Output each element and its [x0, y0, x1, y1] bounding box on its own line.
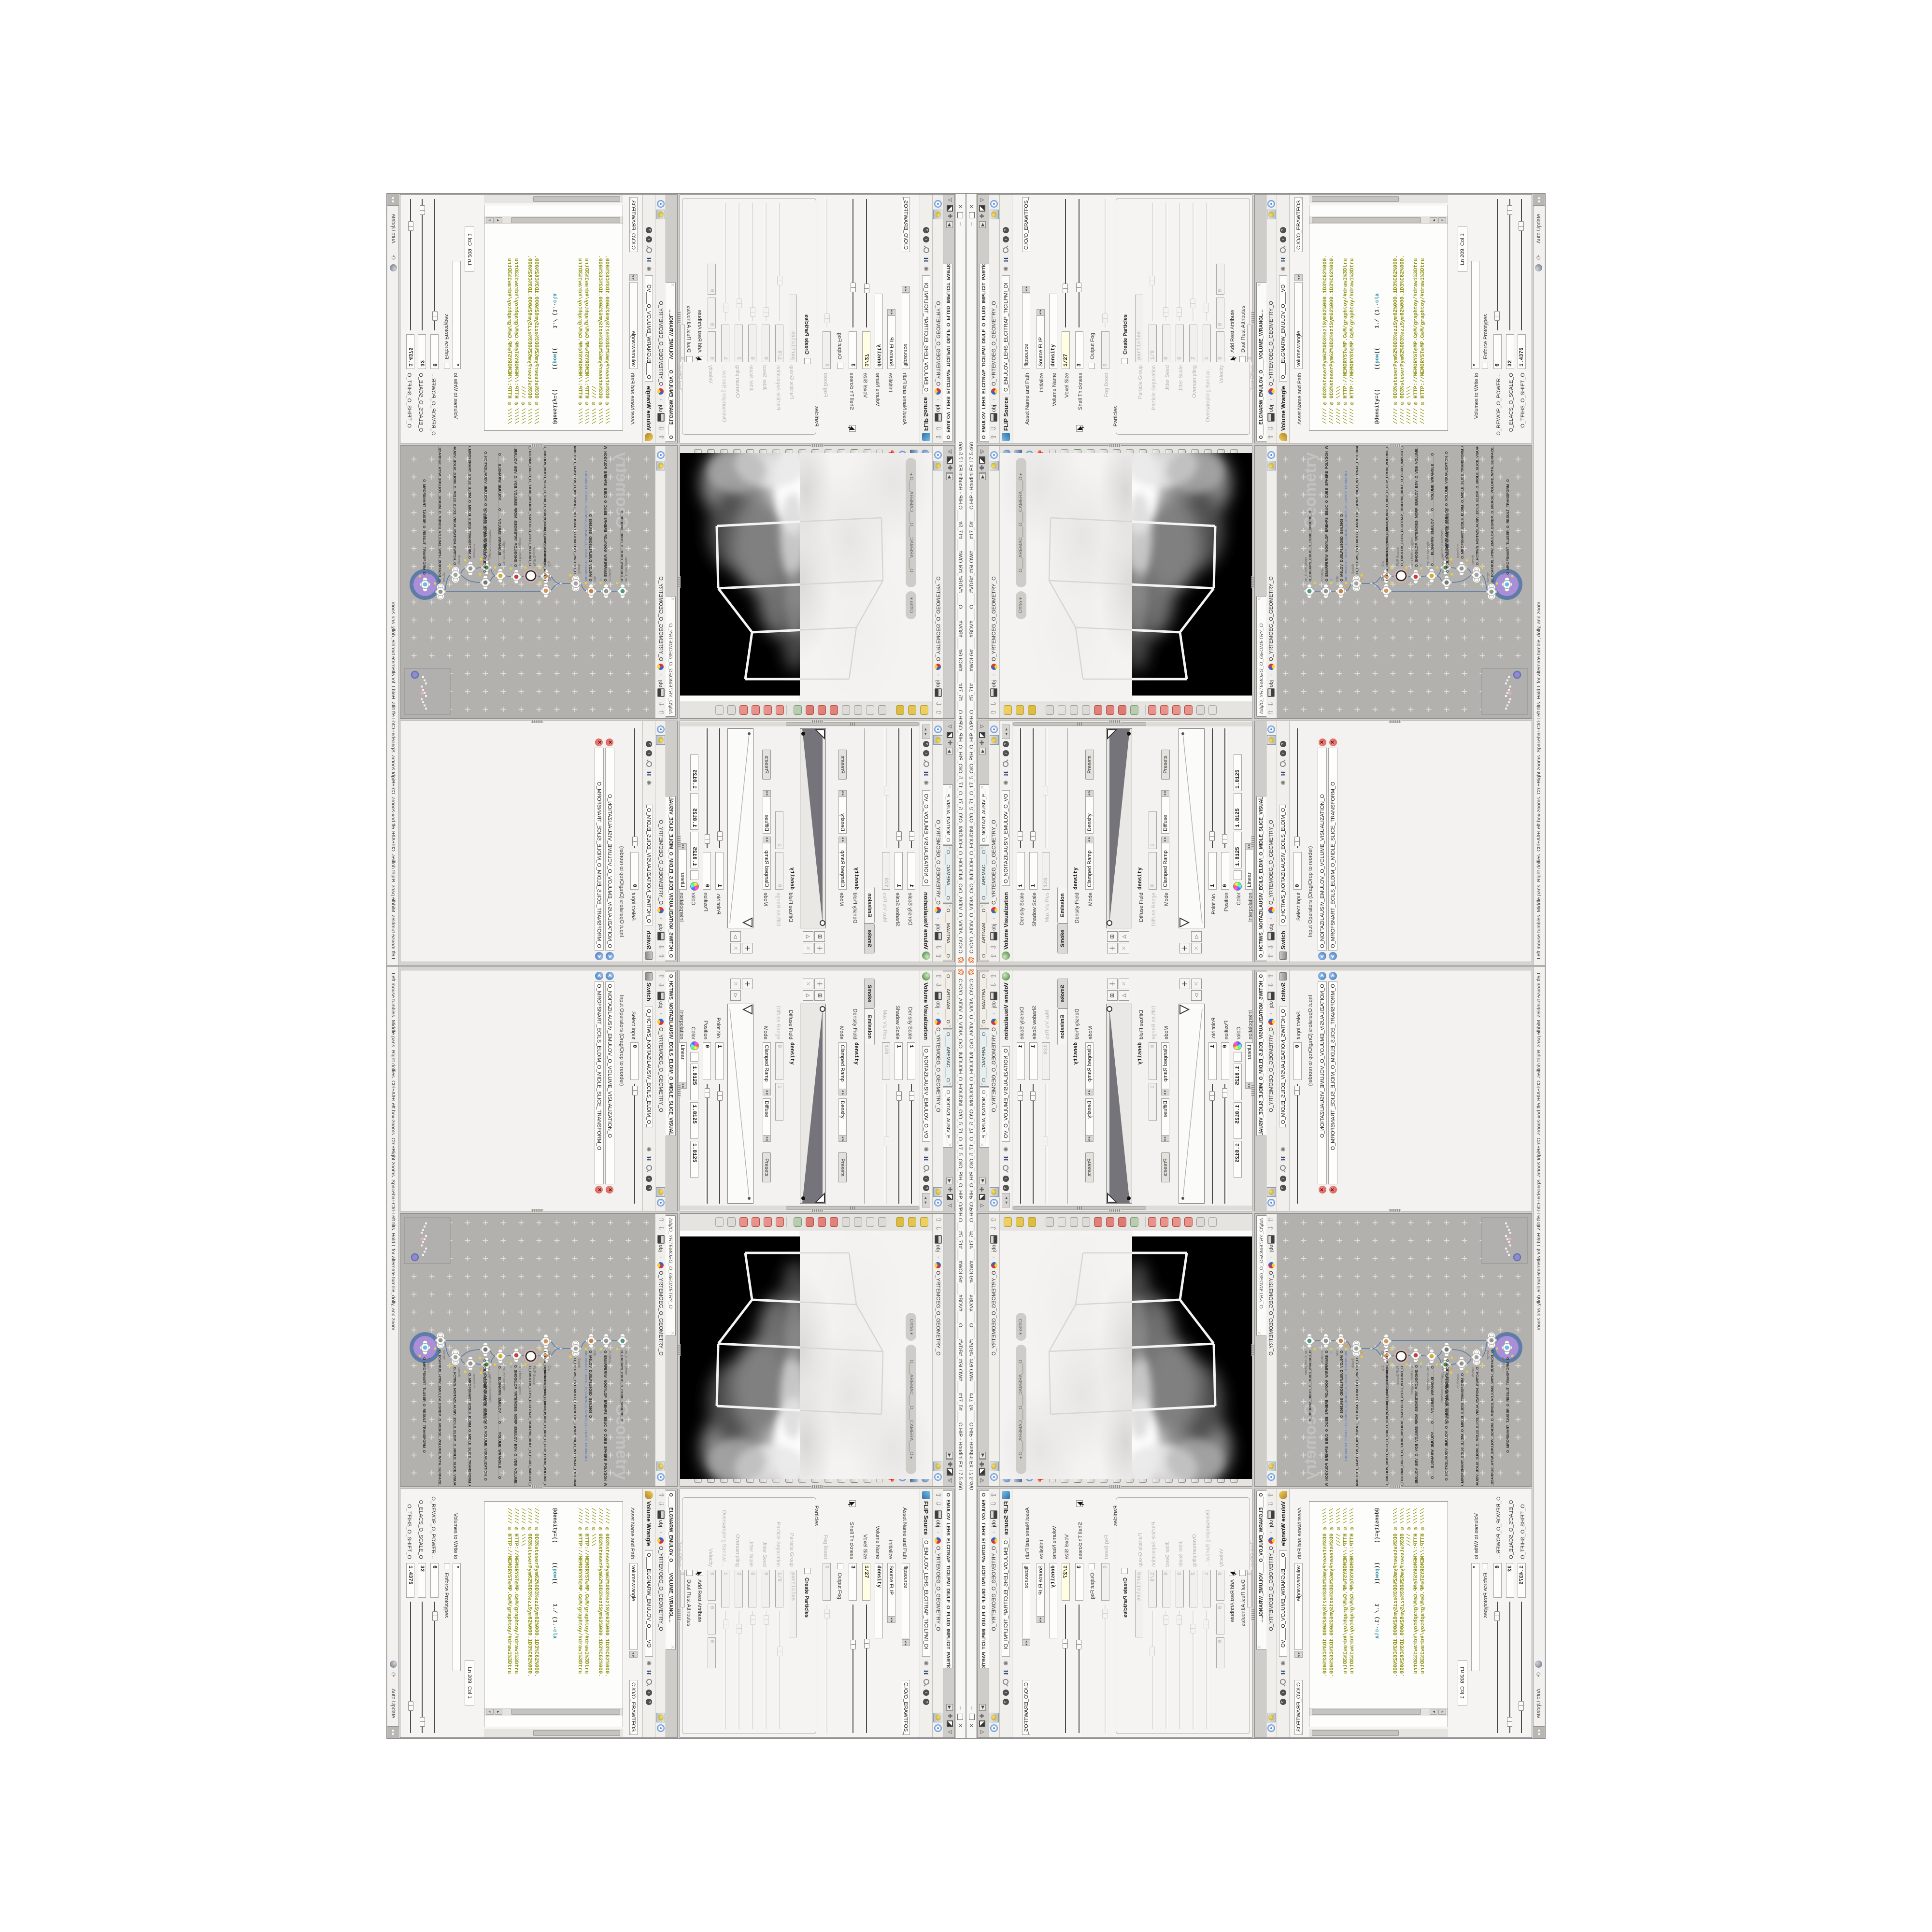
- svg-text:O____ELGNARW_EMULOV____O____VO: O____ELGNARW_EMULOV____O____VOLUME_WRANG…: [1430, 1366, 1435, 1479]
- svg-text:O_EMARFERIW_NOGYLOP_EREHPS_EBU: O_EMARFERIW_NOGYLOP_EREHPS_EBUC_O_CUBE_S…: [1324, 1350, 1329, 1486]
- svg-text:O_HCTIWS_YRTEMOEG_LANRETXE_LAN: O_HCTIWS_YRTEMOEG_LANRETXE_LANRETNI_O_IN…: [573, 446, 577, 574]
- svg-text:an_CubeSphere: an_CubeSphere: [624, 557, 627, 582]
- svg-text:O____ELGNARW_EMULOV____O____VO: O____ELGNARW_EMULOV____O____VOLUME_WRANG…: [497, 1366, 502, 1479]
- svg-text:Transform: Transform: [426, 559, 430, 575]
- svg-text:Volume Wrangle: Volume Wrangle: [502, 541, 505, 566]
- svg-text:Volume Wrangle: Volume Wrangle: [1427, 541, 1430, 566]
- svg-text:O_EREHPS_EBUC_O_CUBE_SPHERE_O: O_EREHPS_EBUC_O_CUBE_SPHERE_O: [620, 511, 624, 582]
- svg-text:O_EMULOV_LEHS_ELCITRAP_TICILPM: O_EMULOV_LEHS_ELCITRAP_TICILPMI_DIULF_O_…: [1400, 1366, 1404, 1486]
- svg-text:O_EMARFERIW_NOGYLOP_EREHPS_EBU: O_EMARFERIW_NOGYLOP_EREHPS_EBUC_O_CUBE_S…: [603, 1350, 608, 1486]
- svg-text:VDB from Polygons: VDB from Polygons: [518, 537, 521, 567]
- svg-text:VDB from Polygons: VDB from Polygons: [518, 1365, 521, 1395]
- svg-text:O____ELGNARW_EMULOV____O____VO: O____ELGNARW_EMULOV____O____VOLUME_WRANG…: [1430, 453, 1435, 566]
- svg-text:File: File: [1336, 1350, 1339, 1356]
- svg-text:O_MROFSNART_TLUSER_O_RESULT_TR: O_MROFSNART_TLUSER_O_RESULT_TRANSFORM_O: [1506, 479, 1510, 575]
- svg-text:Switch: Switch: [457, 555, 460, 565]
- svg-text:PolyWire: PolyWire: [1321, 568, 1324, 582]
- svg-text:O_SNOGILOP_YRTEMOEG_MORF_EMULO: O_SNOGILOP_YRTEMOEG_MORF_EMULOV_BDV_O_VD…: [1414, 446, 1419, 567]
- svg-text:Volume Wrangle: Volume Wrangle: [1427, 1366, 1430, 1391]
- svg-text:VolumeSlice: VolumeSlice: [487, 1359, 490, 1378]
- svg-text:O_EMULOV_LEHS_ELCITRAP_TICILPM: O_EMULOV_LEHS_ELCITRAP_TICILPMI_DIULF_O_…: [528, 446, 532, 566]
- svg-text:Transform: Transform: [426, 1357, 430, 1373]
- svg-text:PolyWire: PolyWire: [608, 1350, 611, 1364]
- svg-text:Switch: Switch: [1351, 1358, 1355, 1368]
- svg-text:Clip: Clip: [1381, 1351, 1385, 1357]
- svg-text:VDB from Polygons: VDB from Polygons: [1411, 537, 1414, 567]
- svg-text:O_ECILS_ELDIM_O_MIDLE_SLICE_O: O_ECILS_ELDIM_O_MIDLE_SLICE_O: [483, 508, 487, 573]
- svg-text:VolumeSlice: VolumeSlice: [1442, 554, 1445, 573]
- svg-text:Volume Wrangle: Volume Wrangle: [502, 1366, 505, 1391]
- svg-text:O_M6LOV_DU5LP8U8G8D_G8NJ908_D: O_M6LOV_DU5LP8U8G8D_G8NJ908_D: [588, 514, 593, 582]
- svg-text:O_ECA_GNIDNUO8_PILC_O_CLIP_O: O_ECA_GNIDNUO8_PILC_O_CLIP_O: [1385, 517, 1389, 581]
- svg-text:O_HCTIWS_YRTEMOEG_LANRETXE_LAN: O_HCTIWS_YRTEMOEG_LANRETXE_LANRETNI_O_IN…: [573, 1358, 577, 1486]
- svg-text:File: File: [1336, 576, 1339, 582]
- svg-text:Merge: Merge: [442, 1350, 445, 1360]
- svg-text:O_MROFSNART_TLUSER_O_RESULT_TR: O_MROFSNART_TLUSER_O_RESULT_TRANSFORM_O: [1506, 1357, 1510, 1453]
- svg-text:O_ECAFRUS_HTIW_EMULOV_EGREM_O_: O_ECAFRUS_HTIW_EMULOV_EGREM_O_MERGE_VOLU…: [438, 446, 442, 582]
- svg-text:O_M6LOV_DU5LP8U8G8D_G8NJ908_D: O_M6LOV_DU5LP8U8G8D_G8NJ908_D: [1339, 514, 1344, 582]
- svg-text:an_CubeSphere: an_CubeSphere: [624, 1350, 627, 1375]
- svg-text:Transform: Transform: [1502, 1357, 1506, 1373]
- svg-text:O_EREHPS_EBUC_O_CUBE_SPHERE_O: O_EREHPS_EBUC_O_CUBE_SPHERE_O: [1308, 511, 1312, 582]
- svg-text:JBO.M03,PET5,TRPOL5_O_55UN3G_O: JBO.M03,PET5,TRPOL5_O_55UN3G_O_G3NU55_O.…: [1345, 471, 1348, 582]
- svg-text:O_MROFSNART_TLUSER_O_RESULT_TR: O_MROFSNART_TLUSER_O_RESULT_TRANSFORM_O: [422, 1357, 426, 1453]
- svg-text:FLIP Source: FLIP Source: [532, 1366, 536, 1385]
- svg-text:File: File: [593, 576, 596, 582]
- svg-text:Clip: Clip: [547, 575, 551, 581]
- svg-text:O_HCTIWS_NOITAZILAUSIV_ECILS_E: O_HCTIWS_NOITAZILAUSIV_ECILS_ELDIM_O_MID…: [453, 446, 457, 565]
- svg-text:an_CubeSphere: an_CubeSphere: [1305, 557, 1308, 582]
- svg-text:O_ECAFRUS_HTIW_EMULOV_EGREM_O_: O_ECAFRUS_HTIW_EMULOV_EGREM_O_MERGE_VOLU…: [1490, 1350, 1494, 1486]
- svg-text:O_EMARFERIW_NOGYLOP_EREHPS_EBU: O_EMARFERIW_NOGYLOP_EREHPS_EBUC_O_CUBE_S…: [1324, 446, 1329, 582]
- svg-text:VolumeSlice: VolumeSlice: [487, 554, 490, 573]
- svg-text:Merge: Merge: [442, 572, 445, 582]
- svg-text:O_EMULOV_LEHS_ELCITRAP_TICILPM: O_EMULOV_LEHS_ELCITRAP_TICILPMI_DIULF_O_…: [528, 1366, 532, 1486]
- svg-text:O_ECA_GNIDNUO8_PILC_O_CLIP_O: O_ECA_GNIDNUO8_PILC_O_CLIP_O: [543, 1351, 547, 1415]
- svg-text:O_HCTIWS_YRTEMOEG_LANRETXE_LAN: O_HCTIWS_YRTEMOEG_LANRETXE_LANRETNI_O_IN…: [1355, 446, 1359, 574]
- svg-text:Clip: Clip: [547, 1351, 551, 1357]
- svg-text:VolumeVisualizatio: VolumeVisualizatio: [488, 1374, 491, 1403]
- svg-text:Clip: Clip: [547, 1365, 551, 1371]
- svg-text:O_ECILS_ELDIM_O_MIDLE_SLICE_O: O_ECILS_ELDIM_O_MIDLE_SLICE_O: [1445, 1359, 1449, 1424]
- svg-text:VDB from Polygons: VDB from Polygons: [1411, 1365, 1414, 1395]
- svg-text:PolyWire: PolyWire: [1321, 1350, 1324, 1364]
- svg-text:JBO.M03,PET5,TRPOL5_O_55UN3G_O: JBO.M03,PET5,TRPOL5_O_55UN3G_O_G3NU55_O.…: [584, 471, 587, 582]
- svg-text:O_EMULOV_LEHS_ELCITRAP_TICILPM: O_EMULOV_LEHS_ELCITRAP_TICILPMI_DIULF_O_…: [1400, 446, 1404, 566]
- svg-text:Transform: Transform: [472, 543, 475, 559]
- svg-text:O_MROFSNART_TLUSER_O_RESULT_TR: O_MROFSNART_TLUSER_O_RESULT_TRANSFORM_O: [422, 479, 426, 575]
- svg-text:O_HCTIWS_NOITAZILAUSIV_ECILS_E: O_HCTIWS_NOITAZILAUSIV_ECILS_ELDIM_O_MID…: [453, 1367, 457, 1486]
- svg-text:O_ECILS_ELDIM_O_MIDLE_SLICE_O: O_ECILS_ELDIM_O_MIDLE_SLICE_O: [483, 1359, 487, 1424]
- svg-text:Transform: Transform: [1457, 543, 1460, 559]
- svg-text:Switch: Switch: [457, 1367, 460, 1377]
- svg-text:JBO.M03,PET5,TRPOL5_O_55UN3G_O: JBO.M03,PET5,TRPOL5_O_55UN3G_O_G3NU55_O.…: [584, 1350, 587, 1461]
- svg-text:O_SNOGILOP_YRTEMOEG_MORF_EMULO: O_SNOGILOP_YRTEMOEG_MORF_EMULOV_BDV_O_VD…: [1414, 1365, 1419, 1486]
- svg-text:O_MROFSNART_ECILS_ELDIM_O_MIDL: O_MROFSNART_ECILS_ELDIM_O_MIDLE_SLICE_TR…: [1460, 1373, 1464, 1486]
- svg-text:O____ELGNARW_EMULOV____O____VO: O____ELGNARW_EMULOV____O____VOLUME_WRANG…: [497, 453, 502, 566]
- svg-text:Transform: Transform: [1457, 1373, 1460, 1389]
- svg-text:O_ECAFRUS_HTIW_EMULOV_EGREM_O_: O_ECAFRUS_HTIW_EMULOV_EGREM_O_MERGE_VOLU…: [438, 1350, 442, 1486]
- svg-text:Switch: Switch: [577, 1358, 581, 1368]
- svg-text:O_MROFSNART_ECILS_ELDIM_O_MIDL: O_MROFSNART_ECILS_ELDIM_O_MIDLE_SLICE_TR…: [468, 1373, 472, 1486]
- svg-text:Transform: Transform: [472, 1373, 475, 1389]
- svg-text:Switch: Switch: [1472, 555, 1475, 565]
- svg-text:Switch: Switch: [1351, 564, 1355, 574]
- svg-text:PolyWire: PolyWire: [608, 568, 611, 582]
- svg-text:O_EREHPS_EBUC_O_CUBE_SPHERE_O: O_EREHPS_EBUC_O_CUBE_SPHERE_O: [1308, 1350, 1312, 1421]
- svg-text:O_EMARFERIW_NOGYLOP_EREHPS_EBU: O_EMARFERIW_NOGYLOP_EREHPS_EBUC_O_CUBE_S…: [603, 446, 608, 582]
- svg-text:Transform: Transform: [1502, 559, 1506, 575]
- svg-text:Merge: Merge: [1487, 572, 1490, 582]
- svg-text:Switch: Switch: [577, 564, 581, 574]
- svg-text:O_HCTIWS_NOITAZILAUSIV_ECILS_E: O_HCTIWS_NOITAZILAUSIV_ECILS_ELDIM_O_MID…: [1475, 1367, 1479, 1486]
- svg-text:O_M6LOV_DU5LP8U8G8D_G8NJ908_D: O_M6LOV_DU5LP8U8G8D_G8NJ908_D: [588, 1350, 593, 1418]
- svg-text:Clip: Clip: [1381, 575, 1385, 581]
- svg-text:O_SNOGILOP_YRTEMOEG_MORF_EMULO: O_SNOGILOP_YRTEMOEG_MORF_EMULOV_BDV_O_VD…: [513, 446, 518, 567]
- svg-text:O_HCTIWS_NOITAZILAUSIV_ECILS_E: O_HCTIWS_NOITAZILAUSIV_ECILS_ELDIM_O_MID…: [1475, 446, 1479, 565]
- svg-text:FLIP Source: FLIP Source: [1396, 1366, 1400, 1385]
- svg-text:O_ECA_GNIDNUO8_PILC_O_CLIP_O: O_ECA_GNIDNUO8_PILC_O_CLIP_O: [1385, 1351, 1389, 1415]
- svg-text:Merge: Merge: [1487, 1350, 1490, 1360]
- svg-text:Switch: Switch: [1472, 1367, 1475, 1377]
- svg-text:VolumeVisualizatio: VolumeVisualizatio: [1441, 1374, 1444, 1403]
- svg-text:Clip: Clip: [1381, 1365, 1385, 1371]
- svg-text:Clip: Clip: [1381, 561, 1385, 567]
- svg-text:O_ECA_GNIDNUO8_PILC_O_CLIP_O: O_ECA_GNIDNUO8_PILC_O_CLIP_O: [543, 517, 547, 581]
- svg-text:O_ECAFRUS_HTIW_EMULOV_EGREM_O_: O_ECAFRUS_HTIW_EMULOV_EGREM_O_MERGE_VOLU…: [1490, 446, 1494, 582]
- svg-text:O_SNOGILOP_YRTEMOEG_MORF_EMULO: O_SNOGILOP_YRTEMOEG_MORF_EMULOV_BDV_O_VD…: [513, 1365, 518, 1486]
- svg-text:O_MROFSNART_ECILS_ELDIM_O_MIDL: O_MROFSNART_ECILS_ELDIM_O_MIDLE_SLICE_TR…: [468, 446, 472, 559]
- svg-text:VolumeVisualizatio: VolumeVisualizatio: [488, 529, 491, 558]
- svg-text:O_M6LOV_DU5LP8U8G8D_G8NJ908_D: O_M6LOV_DU5LP8U8G8D_G8NJ908_D: [1339, 1350, 1344, 1418]
- svg-text:JBO.M03,PET5,TRPOL5_O_55UN3G_O: JBO.M03,PET5,TRPOL5_O_55UN3G_O_G3NU55_O.…: [1345, 1350, 1348, 1461]
- svg-text:VolumeVisualizatio: VolumeVisualizatio: [1441, 529, 1444, 558]
- svg-text:FLIP Source: FLIP Source: [1396, 547, 1400, 566]
- svg-text:File: File: [593, 1350, 596, 1356]
- svg-text:O_MROFSNART_ECILS_ELDIM_O_MIDL: O_MROFSNART_ECILS_ELDIM_O_MIDLE_SLICE_TR…: [1460, 446, 1464, 559]
- svg-text:an_CubeSphere: an_CubeSphere: [1305, 1350, 1308, 1375]
- svg-text:O_ECILS_ELDIM_O_MIDLE_SLICE_O: O_ECILS_ELDIM_O_MIDLE_SLICE_O: [1445, 508, 1449, 573]
- svg-text:O_HCTIWS_YRTEMOEG_LANRETXE_LAN: O_HCTIWS_YRTEMOEG_LANRETXE_LANRETNI_O_IN…: [1355, 1358, 1359, 1486]
- svg-text:FLIP Source: FLIP Source: [532, 547, 536, 566]
- svg-text:O_EREHPS_EBUC_O_CUBE_SPHERE_O: O_EREHPS_EBUC_O_CUBE_SPHERE_O: [620, 1350, 624, 1421]
- svg-text:VolumeSlice: VolumeSlice: [1442, 1359, 1445, 1378]
- svg-text:Clip: Clip: [547, 561, 551, 567]
